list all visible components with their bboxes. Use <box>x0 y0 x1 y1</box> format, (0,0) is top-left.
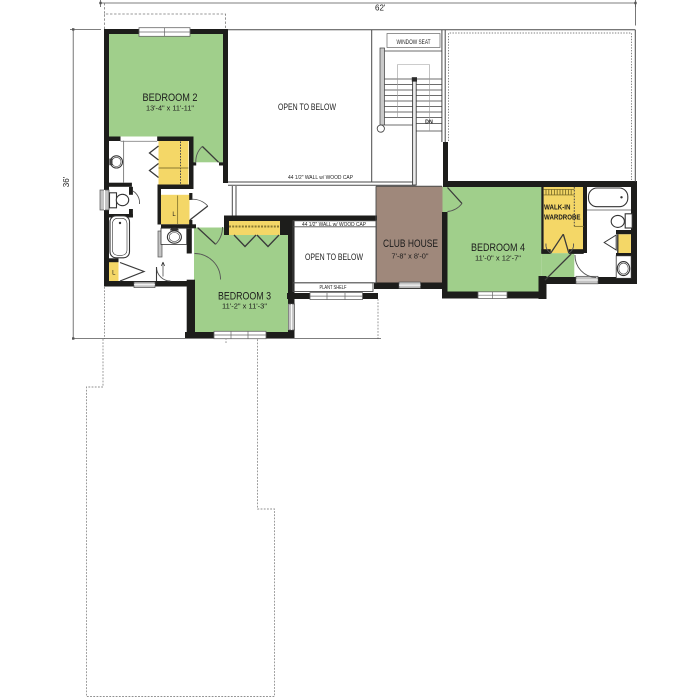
svg-text:BEDROOM 4: BEDROOM 4 <box>471 242 525 254</box>
svg-text:WINDOW SEAT: WINDOW SEAT <box>397 40 431 46</box>
svg-text:BEDROOM 2: BEDROOM 2 <box>143 92 198 104</box>
svg-text:11'-0" x 12'-7": 11'-0" x 12'-7" <box>475 256 522 263</box>
svg-text:CLUB HOUSE: CLUB HOUSE <box>383 238 438 250</box>
svg-text:11'-2" x 11'-3": 11'-2" x 11'-3" <box>222 304 268 311</box>
svg-text:PLANT SHELF: PLANT SHELF <box>320 285 347 291</box>
svg-text:DN: DN <box>425 120 433 126</box>
svg-text:44 1/2" WALL w/ WOOD CAP: 44 1/2" WALL w/ WOOD CAP <box>288 175 353 181</box>
svg-text:OPEN TO BELOW: OPEN TO BELOW <box>305 252 363 263</box>
svg-text:BEDROOM 3: BEDROOM 3 <box>218 291 271 303</box>
svg-text:13'-4" x 11'-11": 13'-4" x 11'-11" <box>146 106 195 113</box>
svg-text:62': 62' <box>375 4 386 13</box>
svg-text:44 1/2" WALL w/ WOOD CAP: 44 1/2" WALL w/ WOOD CAP <box>302 222 366 228</box>
svg-text:OPEN TO BELOW: OPEN TO BELOW <box>278 102 336 113</box>
svg-text:7'-8" x 8'-0": 7'-8" x 8'-0" <box>392 254 430 261</box>
svg-text:WARDROBE: WARDROBE <box>544 212 581 221</box>
svg-text:36': 36' <box>62 176 71 187</box>
svg-text:WALK-IN: WALK-IN <box>544 202 571 211</box>
